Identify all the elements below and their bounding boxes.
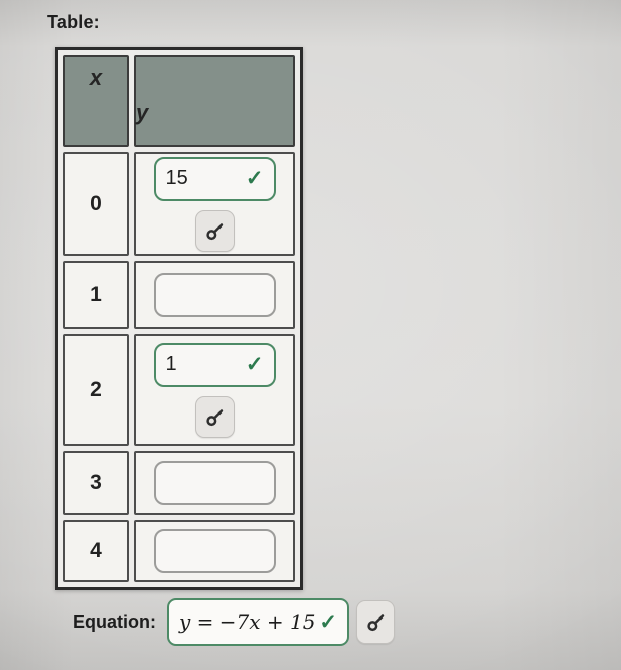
y-answer-cell [134,451,295,515]
show-answer-key-button[interactable] [195,210,235,252]
table-row: 4 [63,520,295,582]
key-icon [204,406,226,428]
y-input-row3[interactable] [154,461,276,505]
y-answer-cell [134,520,295,582]
xy-table: x y 0 15 ✓ 1 [55,47,303,590]
y-input-row1[interactable] [154,273,276,317]
correct-check-icon: ✓ [319,612,337,633]
page-title: Table: [47,12,100,33]
equation-row: Equation: y = −7x + 15 ✓ [73,598,395,646]
table-header-row: x y [63,55,295,147]
column-header-x-label: x [90,65,102,91]
key-icon [204,220,226,242]
table-row: 1 [63,261,295,329]
show-answer-key-button[interactable] [356,600,395,644]
x-value-cell: 4 [63,520,129,582]
y-input-row4[interactable] [154,529,276,573]
equation-value: y = −7x + 15 [179,610,315,634]
show-answer-key-button[interactable] [195,396,235,438]
table-row: 2 1 ✓ [63,334,295,446]
correct-check-icon: ✓ [246,354,264,375]
column-header-x: x [63,55,129,147]
correct-check-icon: ✓ [246,168,264,189]
y-input-value: 15 [166,167,188,190]
key-icon [365,611,387,633]
equation-input[interactable]: y = −7x + 15 ✓ [167,598,349,646]
x-value-cell: 2 [63,334,129,446]
y-answer-cell: 15 ✓ [134,152,295,256]
equation-label: Equation: [73,612,156,633]
table-row: 0 15 ✓ [63,152,295,256]
y-answer-cell [134,261,295,329]
y-answer-cell: 1 ✓ [134,334,295,446]
x-value-cell: 3 [63,451,129,515]
table-row: 3 [63,451,295,515]
x-value-cell: 0 [63,152,129,256]
y-input-row2[interactable]: 1 ✓ [154,343,276,387]
column-header-y-label: y [136,100,148,126]
column-header-y: y [134,55,295,147]
x-value-cell: 1 [63,261,129,329]
y-input-value: 1 [166,353,177,376]
y-input-row0[interactable]: 15 ✓ [154,157,276,201]
